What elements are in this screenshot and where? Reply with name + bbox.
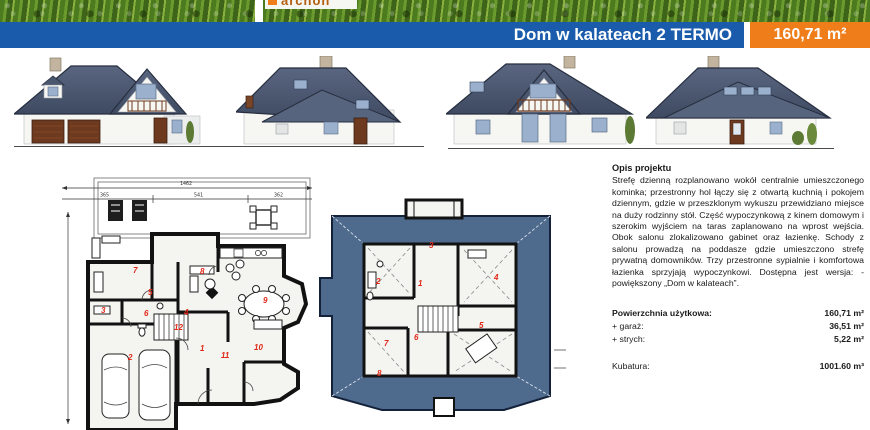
spec-value: 160,71 m²: [824, 307, 864, 320]
spec-label: + garaż:: [612, 320, 644, 333]
room-number: 9: [263, 296, 268, 305]
dim-seg: 541: [194, 193, 203, 199]
ground-line-right: [448, 148, 834, 149]
elevation-front: [14, 56, 214, 156]
elevation-garden: [446, 56, 638, 156]
spec-row: + garaż:36,51 m²: [612, 320, 864, 333]
catalog-page: archon Dom w kalateach 2 TERMO 160,71 m²: [0, 0, 870, 430]
room-number: 1: [418, 279, 423, 288]
dim-seg: 362: [274, 193, 283, 199]
spec-value: 5,22 m²: [834, 333, 864, 346]
spec-row: Powierzchnia użytkowa:160,71 m²: [612, 307, 864, 320]
spec-label: Kubatura:: [612, 360, 650, 373]
room-number: 10: [254, 343, 263, 352]
floorplan-ground: 1462 365 541 362: [58, 172, 316, 430]
header-photo-right: archon: [263, 0, 870, 22]
description-heading: Opis projektu: [612, 163, 864, 174]
ground-line-left: [14, 146, 424, 147]
room-number: 7: [384, 339, 389, 348]
room-number: 1: [200, 344, 205, 353]
logo-text: archon: [281, 0, 330, 8]
room-number: 8: [200, 267, 205, 276]
room-number: 3: [429, 241, 434, 250]
project-title-banner: Dom w kalateach 2 TERMO: [0, 22, 744, 48]
spec-value: 36,51 m²: [829, 320, 864, 333]
room-number: 12: [174, 323, 183, 332]
room-number: 4: [183, 308, 189, 317]
dim-total: 1462: [180, 181, 192, 187]
room-number: 3: [101, 306, 106, 315]
area-badge: 160,71 m²: [750, 22, 870, 48]
room-number: 8: [377, 369, 382, 378]
floorplan-attic: 32145678: [318, 198, 570, 430]
room-number: 5: [148, 288, 153, 297]
brand-logo: archon: [265, 0, 357, 9]
room-number: 6: [144, 309, 149, 318]
logo-square-icon: [268, 0, 277, 5]
dim-seg: 365: [100, 193, 109, 199]
elevation-side-right: [646, 56, 834, 156]
spec-value: 1001.60 m³: [820, 360, 864, 373]
specs-table: Powierzchnia użytkowa:160,71 m²+ garaż:3…: [612, 307, 864, 372]
elevation-side-left: [236, 56, 406, 156]
room-number: 5: [479, 321, 484, 330]
spec-row: Kubatura:1001.60 m³: [612, 360, 864, 373]
project-title: Dom w kalateach 2 TERMO: [514, 25, 732, 45]
spec-label: Powierzchnia użytkowa:: [612, 307, 712, 320]
project-info-column: Opis projektu Strefę dzienną rozplanowan…: [612, 163, 864, 373]
room-number: 2: [375, 277, 381, 286]
area-value: 160,71 m²: [774, 26, 847, 44]
room-number: 11: [221, 351, 230, 360]
room-number: 2: [127, 353, 133, 362]
description-body: Strefę dzienną rozplanowano wokół centra…: [612, 175, 864, 289]
room-number: 6: [414, 333, 419, 342]
room-number: 7: [133, 266, 138, 275]
room-number: 4: [493, 273, 499, 282]
header-photo-left: [0, 0, 255, 22]
spec-row: + strych:5,22 m²: [612, 333, 864, 346]
spec-label: + strych:: [612, 333, 645, 346]
